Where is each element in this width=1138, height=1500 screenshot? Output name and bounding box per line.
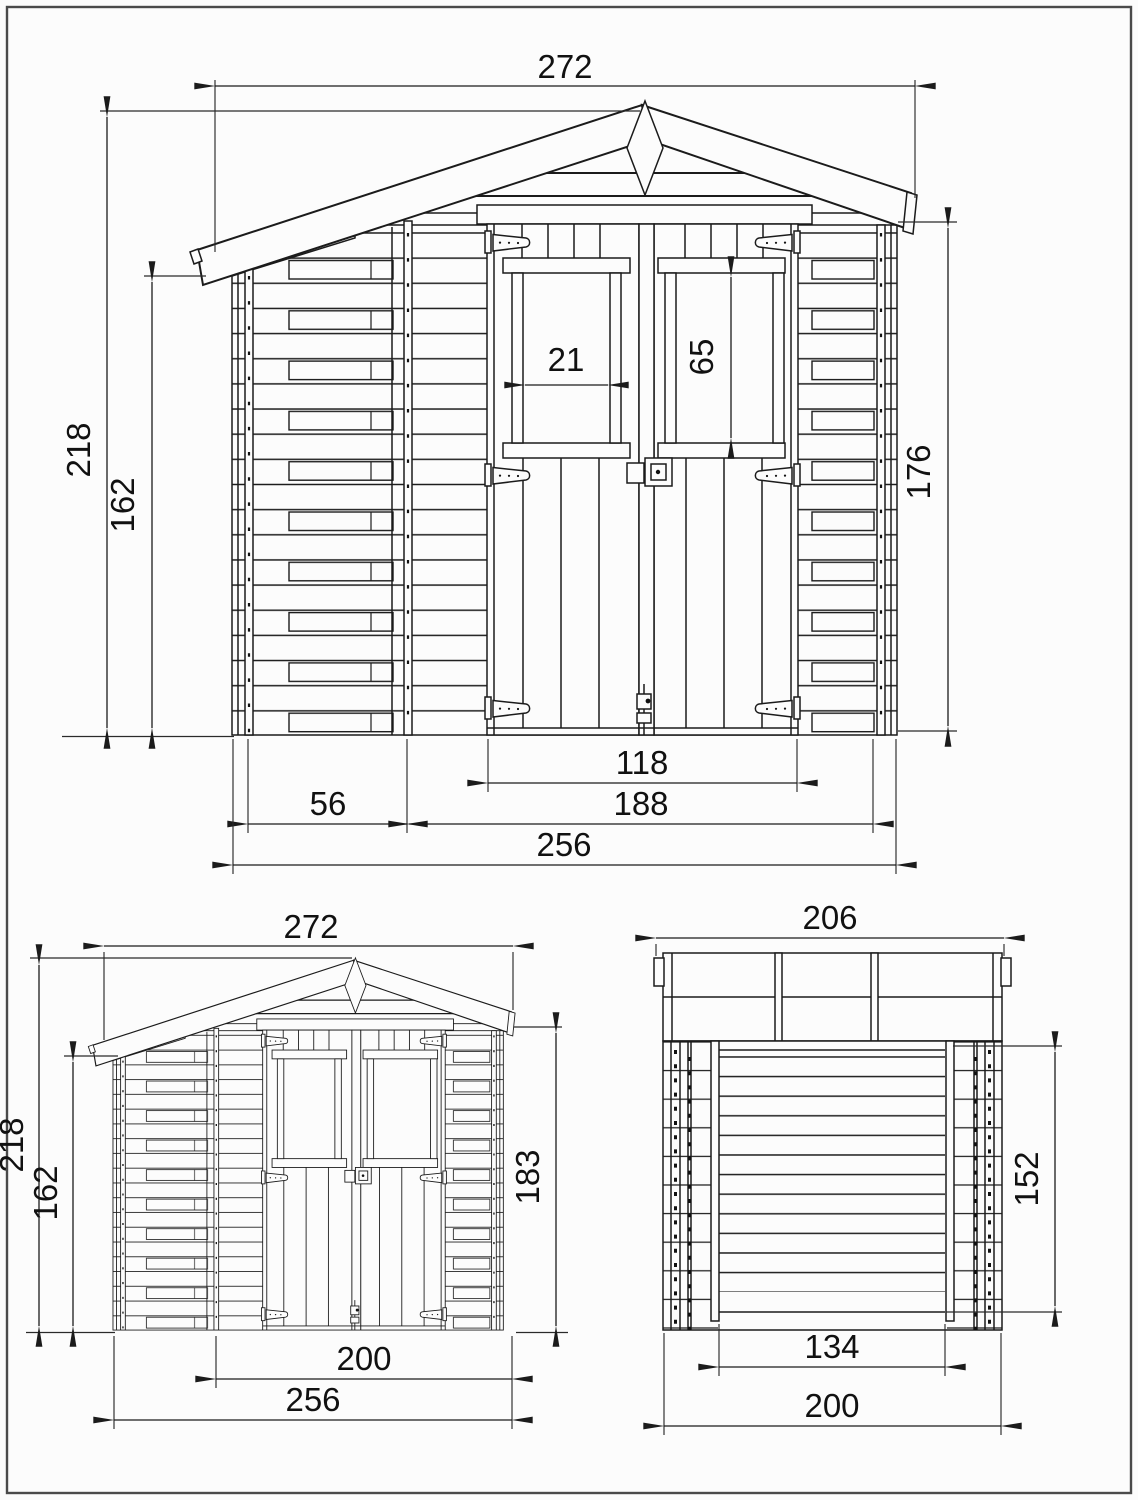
rear-view: 206 152 134 200 (654, 899, 1062, 1435)
left-wall-log-ends (232, 232, 487, 735)
shed-rear-structure (654, 953, 1011, 1330)
technical-drawing-canvas: 272 218 162 21 65 176 118 56 (0, 0, 1138, 1500)
dim-front-roof-width: 272 (537, 48, 592, 85)
front-small-view: 272 218 162 183 200 256 (0, 908, 568, 1429)
dim-front-wall-height: 176 (900, 444, 937, 499)
dim-rear-base-width: 200 (804, 1387, 859, 1424)
rear-wall-planks (719, 1050, 945, 1312)
shed-technical-drawing-sheet: 272 218 162 21 65 176 118 56 (0, 0, 1138, 1500)
corner-batten-right (877, 225, 885, 735)
front-elevation-view: 272 218 162 21 65 176 118 56 (60, 48, 957, 874)
dim-small-inner-width: 200 (336, 1340, 391, 1377)
double-door (485, 224, 800, 735)
rear-post-right (946, 1041, 954, 1321)
bargeboard-end-left (654, 958, 664, 986)
dim-front-eaves-height: 162 (104, 477, 141, 532)
dim-window-height: 65 (683, 339, 720, 376)
dim-front-total-height: 218 (60, 422, 97, 477)
corner-log-stack-left (663, 1041, 718, 1330)
door-header-board (477, 205, 812, 224)
dim-front-base-width: 256 (536, 826, 591, 863)
dim-front-section: 188 (613, 785, 668, 822)
dim-small-total-height: 218 (0, 1117, 30, 1172)
shed-front-small-structure (88, 958, 515, 1330)
dim-small-base-width: 256 (285, 1381, 340, 1418)
shed-front-structure (190, 101, 917, 735)
dim-rear-roof-width: 206 (802, 899, 857, 936)
dim-small-roof-width: 272 (283, 908, 338, 945)
corner-log-stack-right (947, 1041, 1002, 1330)
dim-rear-wall-height: 152 (1008, 1151, 1045, 1206)
dim-window-width: 21 (548, 341, 585, 378)
dim-rear-inner-width: 134 (804, 1328, 859, 1365)
bargeboard-end-right (1001, 958, 1011, 986)
dim-small-eaves-height: 162 (27, 1165, 64, 1220)
roof-slab (654, 953, 1011, 1041)
rear-post-left (711, 1041, 719, 1321)
dim-small-wall-height: 183 (509, 1149, 546, 1204)
dim-door-width: 118 (616, 744, 669, 781)
corner-batten-left (245, 268, 253, 735)
dim-side-section: 56 (310, 785, 347, 822)
